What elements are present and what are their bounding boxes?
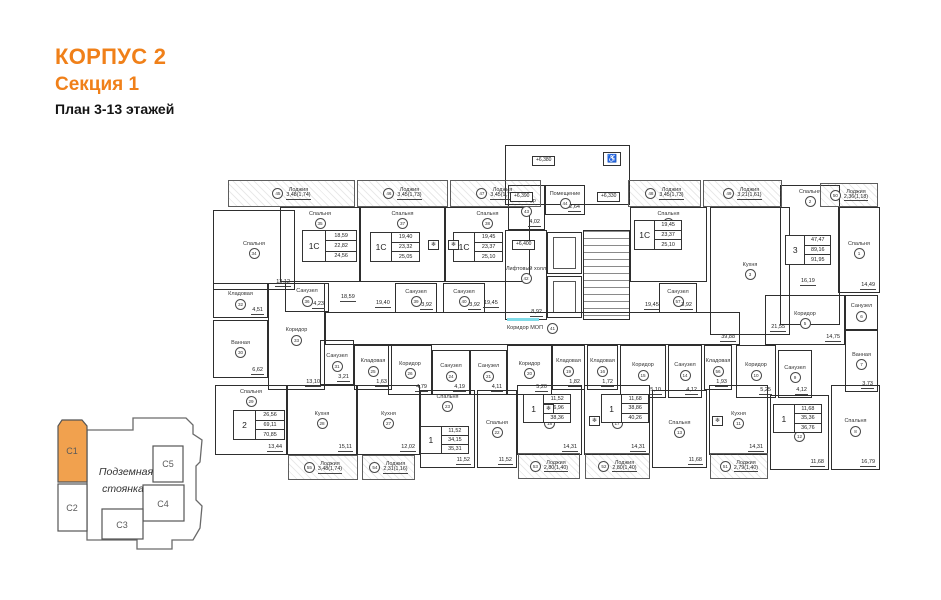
- key-section-label: С1: [66, 446, 78, 456]
- loggia-46: 46Лоджия3,45(1,73): [357, 180, 448, 207]
- room-number: 42: [521, 273, 532, 284]
- room-31: Санузел313,21: [320, 340, 354, 385]
- room-number: 9: [790, 372, 801, 383]
- room-number: 7: [856, 359, 867, 370]
- room-number: 11: [733, 418, 744, 429]
- room-area: 13,44: [267, 444, 283, 452]
- unit-area-value: 19,45: [655, 221, 681, 231]
- key-section-label: С5: [162, 459, 174, 469]
- room-40: Санузел403,92: [443, 283, 485, 313]
- loggia-area: 3,48(1,74): [318, 467, 342, 474]
- room-21: Санузел214,11: [470, 350, 507, 395]
- room-area: 12,02: [400, 444, 416, 452]
- room-13: Спальня1311,68: [652, 390, 707, 468]
- room-41: Коридор МОП4139,88: [325, 312, 740, 345]
- room-39: Санузел393,92: [395, 283, 437, 313]
- room-label: Кухня: [731, 411, 746, 417]
- room-label: Кладовая: [556, 358, 581, 364]
- room-number: 30: [235, 347, 246, 358]
- room-number: 26: [405, 368, 416, 379]
- room-area: 3,92: [680, 302, 693, 310]
- unit-area-value: 70,85: [256, 430, 284, 439]
- room-area: 15,11: [338, 444, 353, 452]
- room-number: 28: [317, 418, 328, 429]
- unit-area-value: 23,37: [475, 243, 502, 253]
- room-7: Ванная73,73: [845, 330, 878, 392]
- loggia-48: 48Лоджия3,45(1,73): [628, 180, 701, 207]
- room-label: Спальня: [799, 189, 821, 195]
- unit-areas: 19,4023,3225,05: [392, 233, 419, 261]
- room-number: 8: [850, 426, 861, 437]
- unit-areas: 18,5922,8224,56: [326, 231, 356, 261]
- loggia-area: 3,45(1,73): [659, 193, 683, 200]
- room-number: 38: [482, 218, 493, 229]
- room-area: 3,92: [468, 302, 481, 310]
- room-number: 16: [597, 366, 608, 377]
- room-area: 4,12: [795, 387, 808, 395]
- unit-area-value: 24,56: [326, 252, 356, 261]
- room-area: 11,68: [810, 459, 825, 467]
- room-label: Санузел: [405, 289, 426, 295]
- room-22: Спальня2211,52: [477, 390, 517, 468]
- floor-plan: Спальня3413,12Спальня35Спальня37Спальня3…: [207, 142, 940, 490]
- room-number: 24: [446, 371, 457, 382]
- loggia-number: 46: [383, 188, 394, 199]
- elevation-mark: +6,400: [512, 240, 535, 250]
- unit-info-table: 347,4789,1691,95: [785, 235, 831, 265]
- unit-area-value: 11,52: [442, 427, 468, 436]
- room-area: 4,23: [312, 301, 325, 309]
- refrigerator-icon: ❄: [448, 240, 459, 250]
- unit-area-value: 34,15: [442, 436, 468, 445]
- room-9: Санузел94,12: [778, 350, 812, 398]
- loggia-52: 52Лоджия2,80(1,40): [585, 453, 650, 479]
- room-area: 3,21: [337, 374, 350, 382]
- room-area: 14,31: [630, 444, 646, 452]
- unit-area-value: 91,95: [805, 255, 830, 264]
- room-label: Коридор: [399, 361, 421, 367]
- unit-info-table: 111,6838,8640,26: [601, 394, 649, 423]
- loggia-text: Лоджия2,80(1,40): [612, 460, 636, 473]
- unit-info-table: 1С19,4023,3225,05: [370, 232, 420, 262]
- room-number: 33: [291, 335, 302, 346]
- loggia-text: Лоджия3,48(1,74): [318, 461, 342, 474]
- unit-areas: 11,6838,8640,26: [622, 395, 648, 422]
- loggia-number: 45: [272, 188, 283, 199]
- room-label: Коридор: [286, 327, 308, 333]
- room-area: 11,52: [456, 457, 471, 465]
- room-label: Спальня: [243, 241, 265, 247]
- unit-info-table: 111,5234,1535,31: [420, 426, 469, 454]
- room-label: Спальня: [668, 420, 690, 426]
- loggia-text: Лоджия2,36(1,18): [844, 189, 868, 202]
- unit-area-value: 11,68: [795, 405, 821, 414]
- loggia-number: 53: [530, 461, 541, 472]
- loggia-text: Лоджия2,80(1,40): [544, 460, 568, 473]
- room-24: Санузел244,19: [432, 350, 470, 395]
- parking-label-line1: Подземная: [99, 466, 154, 478]
- room-56: Кладовая561,93: [704, 345, 732, 390]
- unit-area-value: 23,32: [392, 243, 419, 253]
- loggia-number: 54: [369, 462, 380, 473]
- unit-area-value: 69,11: [256, 421, 284, 431]
- unit-area-value: 25,10: [475, 252, 502, 261]
- room-label: Санузел: [851, 303, 872, 309]
- unit-type: 1: [602, 395, 622, 422]
- unit-info-table: 1С19,4523,3725,10: [453, 232, 503, 262]
- room-30: Ванная306,62: [213, 320, 268, 378]
- dimension-label: 19,40: [375, 300, 391, 308]
- room-label: Санузел: [440, 363, 461, 369]
- room-label: Коридор: [632, 362, 654, 368]
- room-label: Спальня: [486, 420, 508, 426]
- room-label: Спальня: [436, 394, 458, 400]
- loggia-area: 3,48(1,74): [286, 193, 310, 200]
- room-6: Санузел6: [845, 295, 878, 330]
- dimension-label: 18,59: [340, 294, 356, 302]
- loggia-number: 52: [598, 461, 609, 472]
- unit-area-value: 23,37: [655, 231, 681, 241]
- room-number: 2: [805, 196, 816, 207]
- room-number: 22: [492, 427, 503, 438]
- loggia-text: Лоджия3,45(1,73): [397, 187, 421, 200]
- loggia-area: 3,45(1,73): [397, 193, 421, 200]
- refrigerator-icon: ❄: [428, 240, 439, 250]
- wheelchair-icon: ♿: [603, 152, 621, 166]
- unit-area-value: 36,76: [795, 424, 821, 432]
- key-section-label: С2: [66, 503, 78, 513]
- loggia-area: 3,21(1,61): [737, 193, 761, 200]
- room-number: 6: [856, 311, 867, 322]
- room-number: 31: [332, 361, 343, 372]
- building-title: КОРПУС 2: [55, 44, 174, 69]
- room-area: 2,64: [568, 204, 581, 212]
- unit-area-value: 35,31: [442, 445, 468, 453]
- unit-type: 1: [524, 395, 544, 422]
- room-44: Помещение442,64: [545, 185, 585, 215]
- room-32: Кладовая324,51: [213, 283, 268, 318]
- room-label: Спальня: [848, 241, 870, 247]
- room-number: 29: [246, 396, 257, 407]
- room-number: 25: [368, 366, 379, 377]
- room-area: 16,79: [860, 459, 876, 467]
- room-label: Санузел: [784, 365, 805, 371]
- room-area: 4,02: [528, 219, 541, 227]
- unit-areas: 26,5669,1170,85: [256, 411, 284, 439]
- loggia-area: 2,36(1,18): [844, 195, 868, 202]
- loggia-area: 2,80(1,40): [544, 466, 568, 473]
- loggia-number: 49: [723, 188, 734, 199]
- room-label: Кладовая: [590, 358, 615, 364]
- elevator: [547, 232, 582, 274]
- loggia-text: Лоджия2,79(1,40): [734, 460, 758, 473]
- room-number: 5: [800, 318, 811, 329]
- page-header: КОРПУС 2 Секция 1 План 3-13 этажей: [55, 44, 174, 117]
- unit-type: 1: [774, 405, 795, 432]
- room-5: Коридор514,75: [765, 295, 845, 345]
- room-number: 56: [713, 366, 724, 377]
- room-label: Лифтовый холл: [506, 266, 546, 272]
- room-label: Ванная: [852, 352, 871, 358]
- unit-info-table: 1С18,5922,8224,56: [302, 230, 357, 262]
- elevator-cab-icon: [553, 281, 576, 313]
- room-label: Спальня: [657, 211, 679, 217]
- unit-type: 1: [421, 427, 442, 453]
- room-label: Спальня: [844, 418, 866, 424]
- room-label: Коридор: [794, 311, 816, 317]
- room-number: 19: [563, 366, 574, 377]
- room-36: Санузел364,23: [285, 283, 329, 312]
- elevator-cab-icon: [553, 237, 576, 269]
- loggia-53: 53Лоджия2,80(1,40): [518, 453, 580, 479]
- loggia-number: 47: [476, 188, 487, 199]
- unit-area-value: 25,05: [392, 252, 419, 261]
- room-number: 1: [854, 248, 865, 259]
- room-number: 3: [745, 269, 756, 280]
- dimension-label: 19,45: [644, 302, 660, 310]
- room-number: 37: [397, 218, 408, 229]
- section-highlight-bar: [507, 318, 539, 321]
- room-label: Спальня: [309, 211, 331, 217]
- room-label: Помещение: [550, 191, 581, 197]
- room-number: 36: [302, 296, 313, 307]
- loggia-55: 55Лоджия3,48(1,74): [288, 455, 358, 480]
- unit-areas: 11,5234,1535,31: [442, 427, 468, 453]
- room-area: 14,31: [748, 444, 764, 452]
- unit-info-table: 226,5669,1170,85: [233, 410, 285, 440]
- unit-areas: 19,4523,3725,10: [655, 221, 681, 249]
- loggia-number: 55: [304, 462, 315, 473]
- loggia-number: 50: [830, 190, 841, 201]
- unit-area-value: 40,26: [622, 414, 648, 422]
- unit-area-value: 18,59: [326, 231, 356, 241]
- unit-area-value: 11,68: [622, 395, 648, 404]
- dimension-label: 19,45: [483, 300, 499, 308]
- room-label: Спальня: [476, 211, 498, 217]
- room-label: Санузел: [296, 288, 317, 294]
- parking-label-line2: стоянка: [102, 483, 144, 495]
- room-label: Кладовая: [228, 291, 253, 297]
- loggia-49: 49Лоджия3,21(1,61): [703, 180, 782, 207]
- room-1: Спальня114,49: [838, 207, 880, 293]
- loggia-number: 51: [720, 461, 731, 472]
- room-number: 27: [383, 418, 394, 429]
- room-number: 23: [442, 401, 453, 412]
- room-label: Санузел: [478, 363, 499, 369]
- floors-title: План 3-13 этажей: [55, 101, 174, 117]
- room-label: Санузел: [453, 289, 474, 295]
- room-number: 13: [674, 427, 685, 438]
- refrigerator-icon: ❄: [712, 416, 723, 426]
- unit-area-value: 19,40: [392, 233, 419, 243]
- section-title: Секция 1: [55, 74, 174, 96]
- room-label: Ванная: [231, 340, 250, 346]
- unit-type: 3: [786, 236, 805, 264]
- loggia-text: Лоджия3,48(1,74): [286, 187, 310, 200]
- room-16: Кладовая161,72: [587, 345, 618, 390]
- section-key-map: С1 С2 С3 С4 С5 Подземная стоянка: [50, 412, 215, 562]
- room-27: Кухня2712,02: [357, 385, 420, 455]
- dimension-label: 16,19: [800, 278, 816, 286]
- unit-area-value: 25,10: [655, 240, 681, 249]
- room-area: 6,62: [251, 367, 264, 375]
- unit-area-value: 11,52: [544, 395, 570, 404]
- unit-area-value: 38,36: [544, 414, 570, 422]
- room-label: Санузел: [674, 362, 695, 368]
- unit-info-table: 1С19,4523,3725,10: [634, 220, 682, 250]
- room-8: Спальня816,79: [831, 385, 880, 470]
- unit-areas: 11,6835,3636,76: [795, 405, 821, 432]
- room-number: 43: [521, 206, 532, 217]
- room-number: 41: [547, 323, 558, 334]
- loggia-50: 50Лоджия2,36(1,18): [820, 183, 878, 207]
- room-area: 14,75: [825, 334, 841, 342]
- loggia-51: 51Лоджия2,79(1,40): [710, 453, 768, 479]
- room-label: Кухня: [315, 411, 330, 417]
- room-label: Коридор: [745, 362, 767, 368]
- room-25: Кладовая251,63: [354, 345, 392, 390]
- room-number: 20: [524, 368, 535, 379]
- refrigerator-icon: ❄: [543, 404, 554, 414]
- elevation-mark: +6,390: [510, 192, 533, 202]
- room-number: 21: [483, 371, 494, 382]
- loggia-54: 54Лоджия2,31(1,16): [362, 455, 415, 480]
- loggia-text: Лоджия3,45(1,73): [659, 187, 683, 200]
- unit-area-value: 47,47: [805, 236, 830, 246]
- loggia-number: 48: [645, 188, 656, 199]
- room-label: Санузел: [667, 289, 688, 295]
- unit-area-value: 35,36: [795, 414, 821, 423]
- loggia-area: 2,80(1,40): [612, 466, 636, 473]
- room-area: 39,88: [720, 334, 736, 342]
- loggia-area: 2,31(1,16): [383, 467, 407, 474]
- refrigerator-icon: ❄: [589, 416, 600, 426]
- room-area: 11,52: [498, 457, 513, 465]
- room-number: 32: [235, 299, 246, 310]
- room-label: Спальня: [391, 211, 413, 217]
- key-section-label: С4: [157, 499, 169, 509]
- room-area: 3,92: [420, 302, 433, 310]
- room-label: Коридор МОП: [507, 325, 543, 331]
- unit-areas: 19,4523,3725,10: [475, 233, 502, 261]
- room-number: 34: [249, 248, 260, 259]
- unit-area-value: 38,86: [622, 404, 648, 413]
- unit-type: 1С: [635, 221, 655, 249]
- unit-type: 1С: [371, 233, 392, 261]
- room-area: 14,31: [562, 444, 578, 452]
- loggia-45: 45Лоджия3,48(1,74): [228, 180, 355, 207]
- room-label: Кухня: [743, 262, 758, 268]
- unit-area-value: 26,56: [256, 411, 284, 421]
- room-label: Кладовая: [361, 358, 386, 364]
- room-label: Санузел: [326, 353, 347, 359]
- key-section-label: С3: [116, 520, 128, 530]
- loggia-area: 2,79(1,40): [734, 466, 758, 473]
- room-57: Санузел573,92: [659, 283, 697, 313]
- room-area: 14,49: [860, 282, 876, 290]
- room-label: Коридор: [519, 361, 541, 367]
- unit-area-value: 19,45: [475, 233, 502, 243]
- room-label: Спальня: [240, 389, 262, 395]
- elevation-mark: +6,380: [532, 156, 555, 166]
- room-number: 15: [638, 370, 649, 381]
- room-number: 35: [315, 218, 326, 229]
- unit-info-table: 111,6835,3636,76: [773, 404, 822, 433]
- unit-area-value: 89,16: [805, 246, 830, 256]
- room-area: 11,68: [688, 457, 703, 465]
- room-19: Кладовая191,82: [552, 345, 585, 390]
- room-area: 4,51: [251, 307, 264, 315]
- loggia-text: Лоджия3,21(1,61): [737, 187, 761, 200]
- room-label: Кухня: [381, 411, 396, 417]
- room-label: Кладовая: [706, 358, 731, 364]
- unit-type: 1С: [303, 231, 326, 261]
- staircase: [583, 230, 630, 320]
- unit-type: 2: [234, 411, 256, 439]
- unit-areas: 47,4789,1691,95: [805, 236, 830, 264]
- unit-area-value: 22,82: [326, 241, 356, 251]
- elevation-mark: +6,330: [597, 192, 620, 202]
- room-28: Кухня2815,11: [287, 385, 357, 455]
- room-number: 14: [680, 370, 691, 381]
- room-number: 10: [751, 370, 762, 381]
- loggia-text: Лоджия2,31(1,16): [383, 461, 407, 474]
